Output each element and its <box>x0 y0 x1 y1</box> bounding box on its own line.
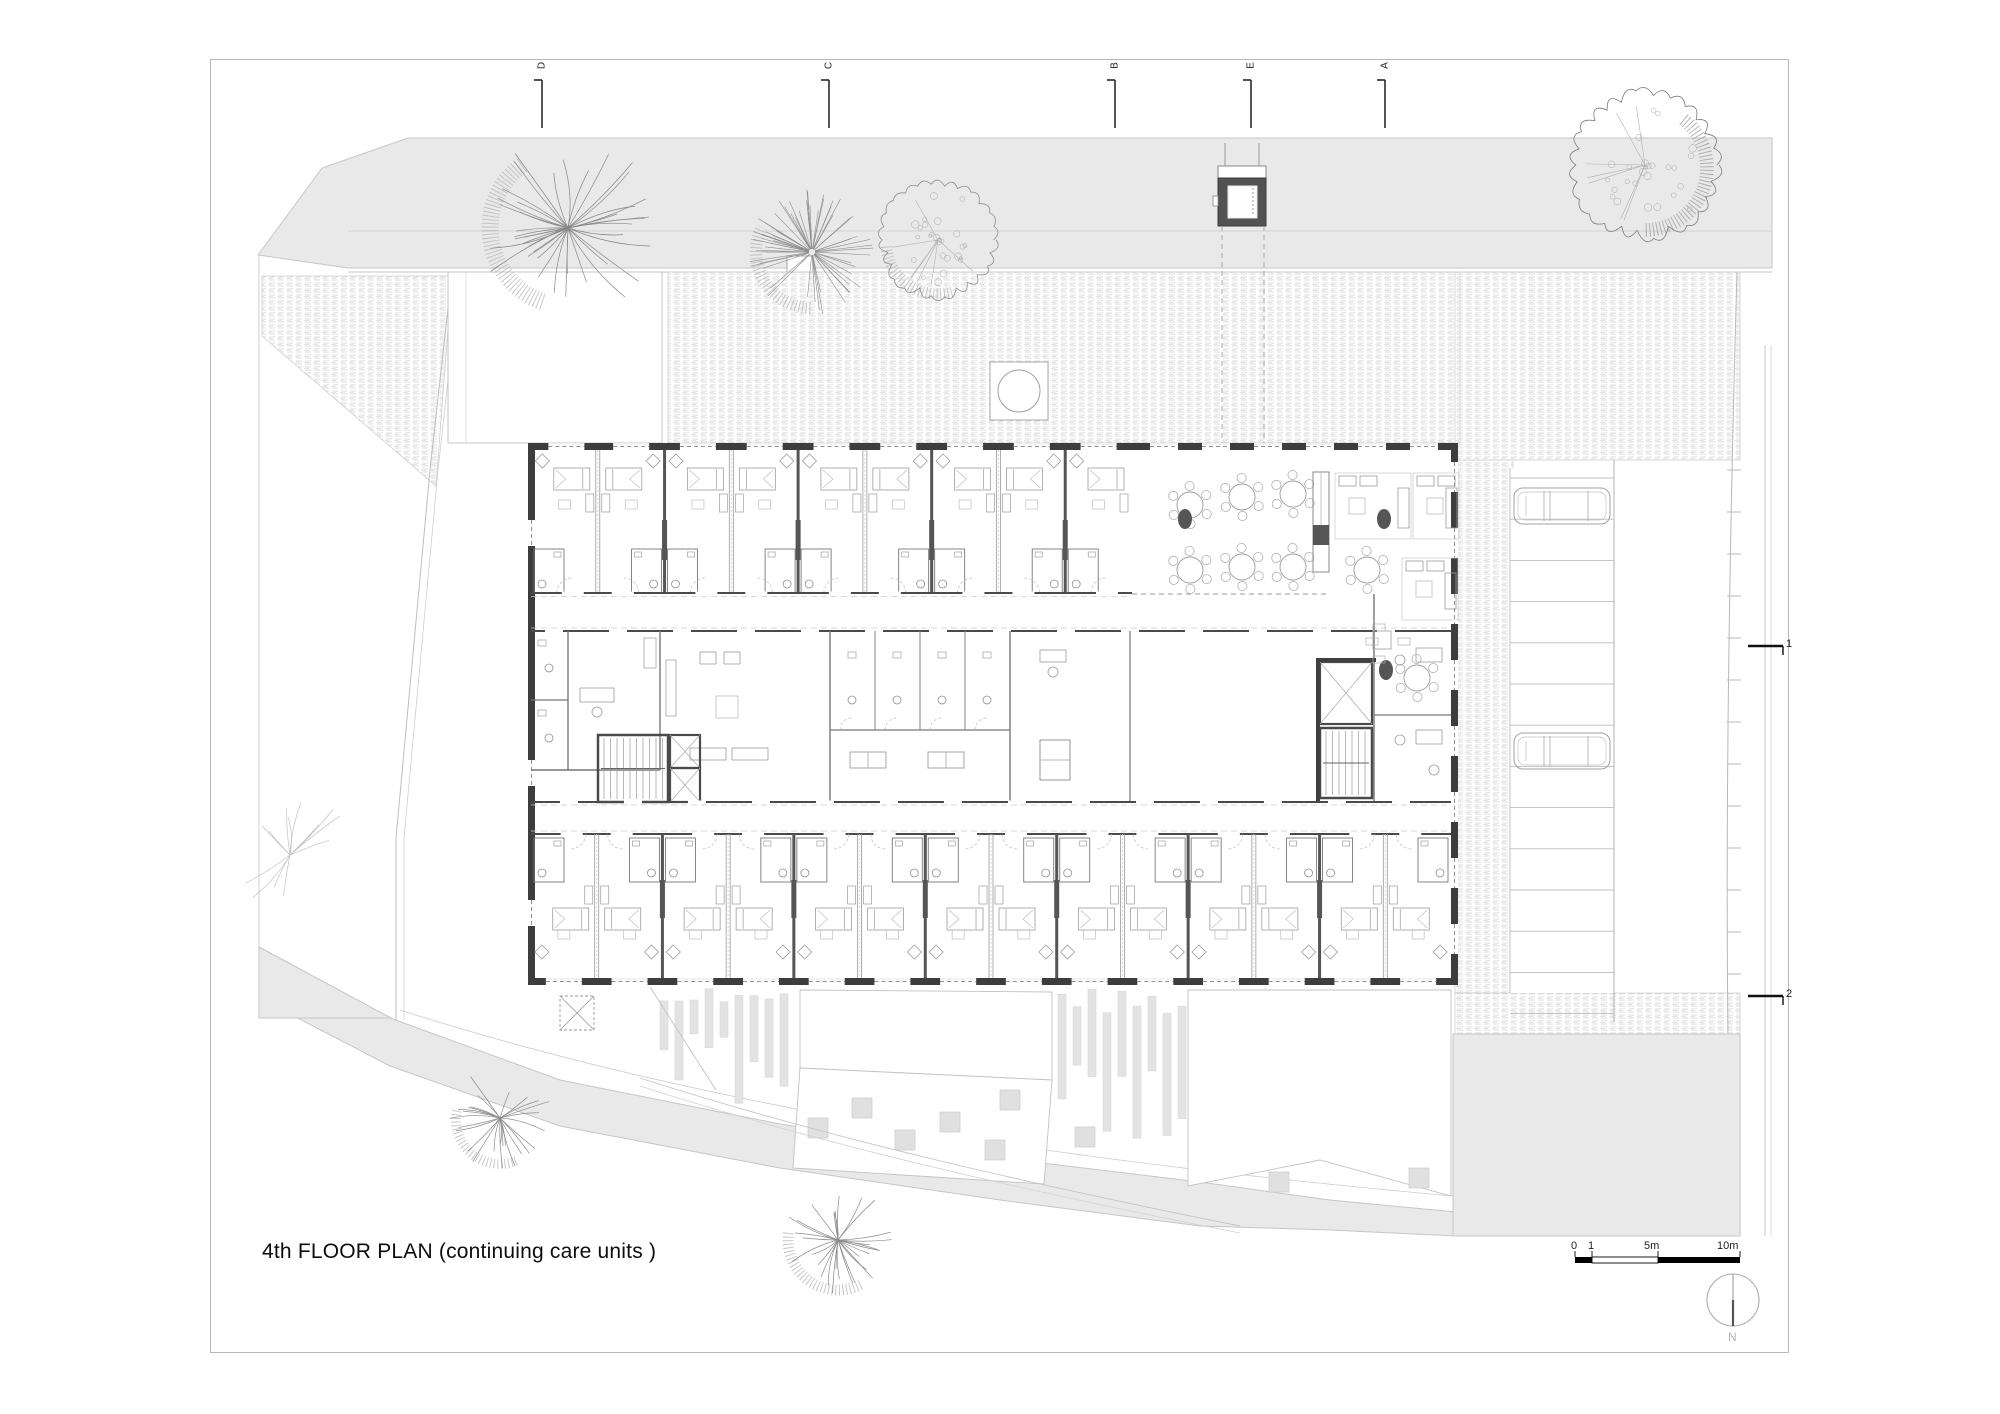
grid-marker-d: D <box>537 57 548 75</box>
grid-marker-c: C <box>824 57 835 75</box>
grid-marker-b: B <box>1110 57 1121 75</box>
section-marker-1: 1 <box>1786 638 1792 650</box>
north-label: N <box>1728 1330 1737 1344</box>
section-marker-2: 2 <box>1786 988 1792 1000</box>
scale-label-10m: 10m <box>1717 1240 1738 1252</box>
grid-marker-e: E <box>1246 57 1257 75</box>
scale-label-5m: 5m <box>1644 1240 1659 1252</box>
grid-marker-a: A <box>1380 57 1391 75</box>
sheet-border <box>210 59 1789 1353</box>
scale-label-1: 1 <box>1588 1240 1594 1252</box>
scale-label-0: 0 <box>1571 1240 1577 1252</box>
page-title: 4th FLOOR PLAN (continuing care units ) <box>262 1240 656 1264</box>
floor-plan-sheet: D C B E A 1 2 0 1 5m 10m N 4th FLOOR PLA… <box>0 0 2000 1414</box>
